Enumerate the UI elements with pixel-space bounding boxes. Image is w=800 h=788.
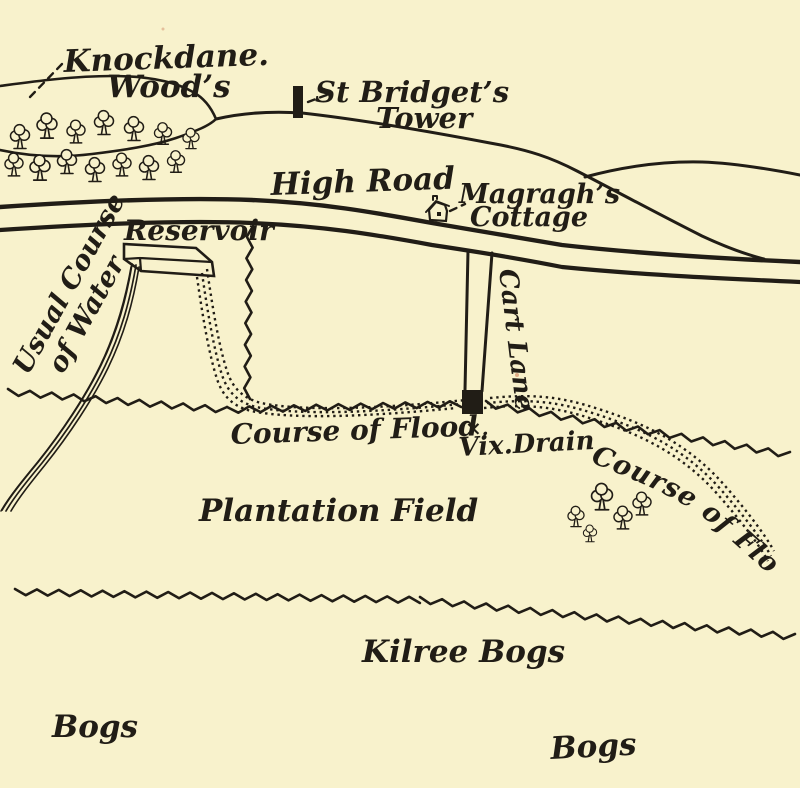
- plantation-field-label: Plantation Field: [198, 493, 478, 529]
- svg-text:Cart Lane: Cart Lane: [492, 267, 539, 412]
- tower-icon: [293, 86, 303, 118]
- plantation-trees: [568, 483, 651, 541]
- cart-lane-right-line: [482, 253, 492, 391]
- cottage-icon: [426, 196, 449, 221]
- cart-lane-label: Cart Lane: [492, 267, 539, 412]
- kilree-bogs-label: Kilree Bogs: [361, 634, 565, 670]
- st-bridgets-label-2: Tower: [376, 101, 475, 135]
- fence-zigzag-middle-vertical: [244, 226, 253, 399]
- reservoir-label: Reservoir: [123, 214, 276, 247]
- knockdane-woods-trees: [5, 111, 199, 182]
- paper-speck: [162, 28, 165, 31]
- ridge-line: [585, 162, 800, 177]
- cart-lane-left-line: [465, 251, 468, 390]
- bogs-right-label: Bogs: [549, 727, 638, 768]
- fence-zigzag-bottom-west: [15, 589, 420, 603]
- vix-drain-label: Vix.Drain: [458, 426, 595, 463]
- magraghs-cottage-label-2: Cottage: [470, 202, 588, 233]
- fence-zigzag-bottom-east: [420, 597, 795, 639]
- course-of-flood-left-label: Course of Flood: [230, 409, 478, 451]
- high-road-label: High Road: [269, 161, 455, 203]
- fence-zigzag-left: [8, 389, 227, 412]
- flood-course-left-dotted: [197, 269, 466, 416]
- knockdane-woods-label-2: Wood’s: [107, 69, 231, 105]
- bogs-left-label: Bogs: [51, 709, 138, 745]
- hand-drawn-map: Knockdane. Wood’s St Bridget’s Tower Hig…: [0, 0, 800, 788]
